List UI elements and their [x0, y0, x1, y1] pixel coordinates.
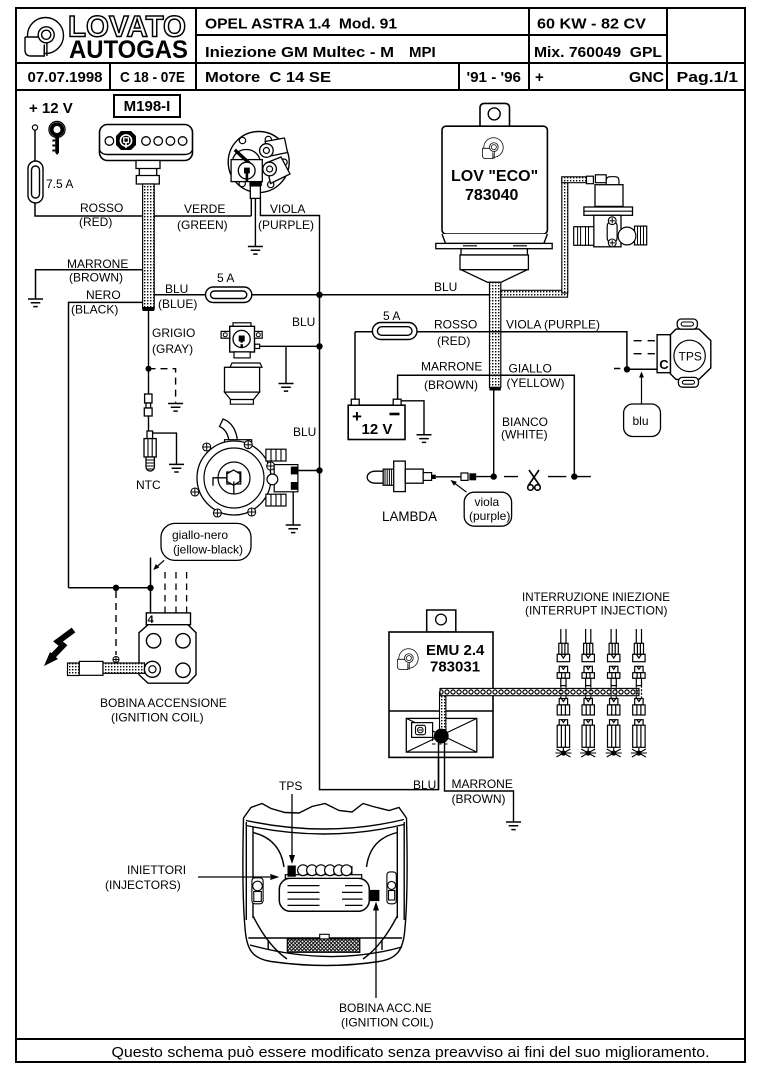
svg-text:07.07.1998: 07.07.1998	[28, 69, 103, 86]
svg-text:AUTOGAS: AUTOGAS	[69, 36, 188, 64]
svg-text:Pag.1/1: Pag.1/1	[677, 69, 739, 86]
svg-text:GRIGIO: GRIGIO	[152, 326, 195, 340]
svg-text:(RED): (RED)	[79, 215, 112, 229]
svg-text:(BROWN): (BROWN)	[452, 792, 506, 806]
svg-text:Mix. 760049 GPL: Mix. 760049 GPL	[534, 44, 662, 61]
svg-text:(YELLOW): (YELLOW)	[507, 376, 565, 390]
svg-text:EMU 2.4: EMU 2.4	[426, 642, 485, 659]
svg-text:C: C	[659, 357, 669, 372]
svg-text:12 V: 12 V	[362, 421, 393, 438]
svg-text:INIETTORI: INIETTORI	[127, 863, 186, 877]
svg-text:BOBINA ACC.NE: BOBINA ACC.NE	[339, 1001, 432, 1015]
svg-text:(IGNITION COIL): (IGNITION COIL)	[341, 1016, 434, 1030]
svg-text:TPS: TPS	[679, 349, 702, 363]
svg-text:(GRAY): (GRAY)	[152, 342, 193, 356]
svg-text:NTC: NTC	[136, 478, 161, 492]
svg-text:783031: 783031	[430, 659, 480, 676]
svg-text:(BLACK): (BLACK)	[71, 303, 118, 317]
svg-text:+ 12 V: + 12 V	[29, 100, 73, 117]
svg-text:Iniezione GM Multec - M: Iniezione GM Multec - M	[205, 44, 394, 61]
svg-text:VIOLA (PURPLE): VIOLA (PURPLE)	[506, 318, 600, 332]
svg-text:BLU: BLU	[434, 280, 457, 294]
svg-text:(WHITE): (WHITE)	[501, 428, 548, 442]
svg-text:M198-I: M198-I	[124, 98, 171, 115]
svg-text:GNC: GNC	[629, 69, 664, 86]
svg-text:5 A: 5 A	[383, 309, 400, 323]
svg-text:'91 - '96: '91 - '96	[467, 69, 522, 86]
svg-text:LOV "ECO": LOV "ECO"	[451, 168, 538, 185]
svg-text:TPS: TPS	[279, 779, 302, 793]
svg-text:viola: viola	[475, 495, 500, 509]
svg-text:C 18 - 07E: C 18 - 07E	[120, 69, 185, 86]
svg-text:BLU: BLU	[292, 315, 315, 329]
svg-text:MARRONE: MARRONE	[452, 777, 513, 791]
svg-text:BLU: BLU	[293, 425, 316, 439]
svg-text:60 KW - 82 CV: 60 KW - 82 CV	[537, 16, 646, 33]
svg-text:BLU: BLU	[413, 778, 436, 792]
svg-text:LAMBDA: LAMBDA	[382, 508, 438, 524]
svg-text:ROSSO: ROSSO	[80, 201, 123, 215]
svg-text:(BROWN): (BROWN)	[424, 378, 478, 392]
svg-text:+: +	[535, 69, 544, 86]
svg-text:ROSSO: ROSSO	[434, 318, 477, 332]
svg-text:(purple): (purple)	[469, 509, 510, 523]
svg-text:NERO: NERO	[86, 288, 121, 302]
svg-text:(BROWN): (BROWN)	[69, 271, 123, 285]
svg-text:VERDE: VERDE	[184, 202, 225, 216]
svg-text:MARRONE: MARRONE	[67, 257, 128, 271]
svg-text:INTERRUZIONE INIEZIONE: INTERRUZIONE INIEZIONE	[522, 590, 670, 604]
svg-text:Motore C 14 SE: Motore C 14 SE	[205, 69, 331, 86]
svg-text:7.5 A: 7.5 A	[46, 177, 73, 191]
svg-text:+: +	[352, 407, 362, 426]
svg-text:Questo schema può essere modif: Questo schema può essere modificato senz…	[112, 1045, 710, 1061]
svg-text:blu: blu	[633, 414, 649, 428]
svg-text:(INJECTORS): (INJECTORS)	[105, 878, 181, 892]
svg-text:MPI: MPI	[409, 44, 436, 61]
svg-text:giallo-nero: giallo-nero	[172, 528, 228, 542]
svg-text:OPEL ASTRA 1.4 Mod. 91: OPEL ASTRA 1.4 Mod. 91	[205, 16, 397, 33]
svg-text:(GREEN): (GREEN)	[177, 218, 228, 232]
svg-text:(IGNITION COIL): (IGNITION COIL)	[111, 711, 204, 725]
svg-text:BOBINA ACCENSIONE: BOBINA ACCENSIONE	[100, 696, 227, 710]
svg-text:(BLUE): (BLUE)	[158, 297, 197, 311]
svg-text:MARRONE: MARRONE	[421, 360, 482, 374]
svg-text:(PURPLE): (PURPLE)	[258, 218, 314, 232]
svg-text:(RED): (RED)	[437, 334, 470, 348]
svg-text:783040: 783040	[465, 187, 518, 204]
svg-text:VIOLA: VIOLA	[270, 202, 305, 216]
svg-text:5 A: 5 A	[217, 271, 234, 285]
svg-text:BLU: BLU	[165, 282, 188, 296]
svg-text:(jellow-black): (jellow-black)	[173, 543, 243, 557]
svg-text:GIALLO: GIALLO	[509, 362, 552, 376]
svg-text:(INTERRUPT INJECTION): (INTERRUPT INJECTION)	[525, 604, 668, 618]
